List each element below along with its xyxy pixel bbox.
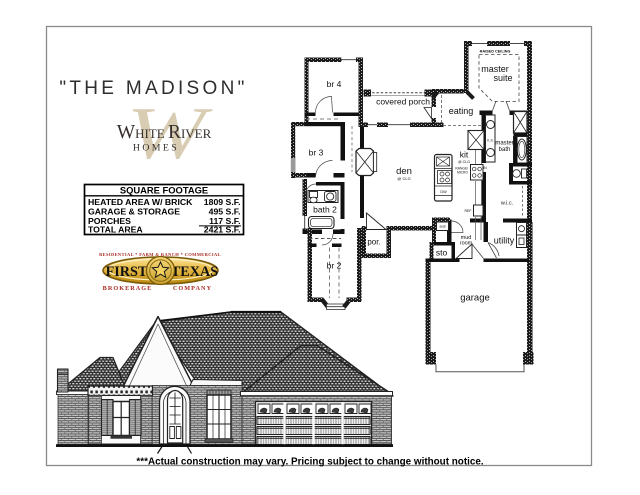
svg-text:bath 2: bath 2 — [313, 205, 337, 215]
svg-text:covered porch: covered porch — [376, 97, 430, 107]
svg-text:seat: seat — [439, 225, 445, 229]
svg-text:HOMES: HOMES — [133, 143, 179, 154]
svg-text:FIRST: FIRST — [106, 264, 148, 280]
svg-text:RAISED CEILING: RAISED CEILING — [480, 50, 511, 54]
svg-text:K.S.: K.S. — [487, 139, 493, 143]
svg-text:MICRO: MICRO — [457, 171, 468, 175]
svg-text:SQUARE FOOTAGE: SQUARE FOOTAGE — [120, 184, 208, 195]
svg-text:HEATED AREA W/ BRICK: HEATED AREA W/ BRICK — [88, 197, 193, 207]
svg-text:bath: bath — [499, 147, 511, 153]
svg-text:***Actual construction may var: ***Actual construction may vary. Pricing… — [136, 457, 483, 468]
svg-text:master: master — [495, 141, 513, 147]
svg-text:eating: eating — [449, 106, 474, 116]
svg-text:TOTAL AREA: TOTAL AREA — [88, 225, 143, 235]
svg-text:@ CLG: @ CLG — [458, 160, 470, 164]
svg-text:garage: garage — [460, 293, 490, 304]
svg-text:br 3: br 3 — [309, 148, 324, 158]
svg-text:REF: REF — [465, 209, 472, 213]
svg-text:@ CLG: @ CLG — [397, 176, 410, 181]
svg-text:BROKERAGE: BROKERAGE — [103, 285, 153, 292]
svg-text:utility: utility — [494, 236, 515, 246]
svg-text:COMPANY: COMPANY — [173, 285, 212, 292]
svg-text:kit: kit — [460, 150, 469, 160]
svg-text:1809 S.F.: 1809 S.F. — [204, 197, 241, 207]
svg-text:WHITE RIVER: WHITE RIVER — [117, 122, 212, 143]
svg-text:TEXAS: TEXAS — [171, 264, 218, 280]
svg-text:sto: sto — [436, 248, 448, 258]
svg-text:br 4: br 4 — [327, 79, 342, 89]
svg-text:w.i.c.: w.i.c. — [500, 201, 514, 207]
svg-text:por.: por. — [367, 238, 380, 247]
svg-text:br 2: br 2 — [327, 261, 342, 271]
svg-text:suite: suite — [493, 73, 512, 83]
svg-text:DW: DW — [440, 190, 447, 194]
svg-text:2421 S.F.: 2421 S.F. — [204, 225, 241, 235]
